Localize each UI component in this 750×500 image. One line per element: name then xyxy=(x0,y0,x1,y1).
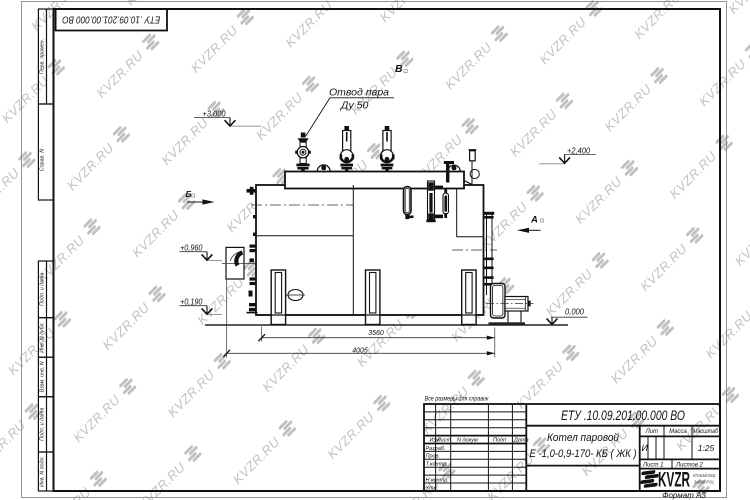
svg-text:Инв. N дубл.: Инв. N дубл. xyxy=(40,322,46,353)
svg-text:N докум: N докум xyxy=(457,438,478,444)
svg-text:34800 РЭ1: 34800 РЭ1 xyxy=(694,480,714,485)
svg-text:Е -1,0-0,9-170- КБ ( ЖК ): Е -1,0-0,9-170- КБ ( ЖК ) xyxy=(530,448,637,460)
svg-text:Отвод пара: Отвод пара xyxy=(329,87,389,99)
svg-text:Лит: Лит xyxy=(645,429,658,435)
svg-text:Н.контр.: Н.контр. xyxy=(426,477,449,483)
svg-text:4005: 4005 xyxy=(352,348,368,355)
svg-text:А: А xyxy=(530,215,538,226)
svg-text:Инв. N подл.: Инв. N подл. xyxy=(40,456,46,487)
svg-text:Котел паровой: Котел паровой xyxy=(547,432,619,444)
svg-text:Справ. N: Справ. N xyxy=(40,149,46,171)
svg-text:Перв. примен.: Перв. примен. xyxy=(40,39,46,74)
svg-text:ЕТУ .10.09.201.00.000 ВО: ЕТУ .10.09.201.00.000 ВО xyxy=(561,408,685,423)
svg-text:Все размеры для справок: Все размеры для справок xyxy=(425,395,490,403)
svg-text:Подп. и дата: Подп. и дата xyxy=(40,408,46,441)
svg-text:+3,000: +3,000 xyxy=(203,109,226,119)
svg-text:Масштаб: Масштаб xyxy=(693,429,719,435)
svg-text:1:25: 1:25 xyxy=(698,443,715,453)
svg-text:Т.контр.: Т.контр. xyxy=(426,462,448,468)
svg-text:ЕТУ .10.09.201.00.000 ВО: ЕТУ .10.09.201.00.000 ВО xyxy=(62,13,160,24)
svg-text:+2,400: +2,400 xyxy=(567,146,590,156)
svg-text:+0,960: +0,960 xyxy=(180,243,203,253)
svg-text:0,000: 0,000 xyxy=(565,307,584,317)
svg-text:И: И xyxy=(642,443,649,453)
svg-text:Подп: Подп xyxy=(493,438,506,444)
svg-text:В: В xyxy=(395,63,403,75)
svg-text:Ду 50: Ду 50 xyxy=(340,100,369,112)
svg-text:Разраб.: Разраб. xyxy=(426,446,446,452)
svg-text:KVZR: KVZR xyxy=(658,469,690,492)
svg-text:Лист: Лист xyxy=(436,438,452,444)
svg-text:Пров.: Пров. xyxy=(426,454,441,460)
svg-text:Формат А3: Формат А3 xyxy=(662,491,706,500)
svg-text:Б: Б xyxy=(186,189,192,199)
svg-text:+0,190: +0,190 xyxy=(180,297,203,307)
svg-text:3560: 3560 xyxy=(368,330,384,337)
svg-text:Взам. инв. N: Взам. инв. N xyxy=(40,361,46,392)
svg-text:Подп. и дата: Подп. и дата xyxy=(40,273,46,306)
svg-text:Масса: Масса xyxy=(669,429,687,435)
svg-text:КОТЕЛЬНЫЙ ЗАВОД: КОТЕЛЬНЫЙ ЗАВОД xyxy=(693,471,715,478)
svg-text:Дата: Дата xyxy=(513,438,529,444)
svg-text:Утв.: Утв. xyxy=(425,485,439,491)
